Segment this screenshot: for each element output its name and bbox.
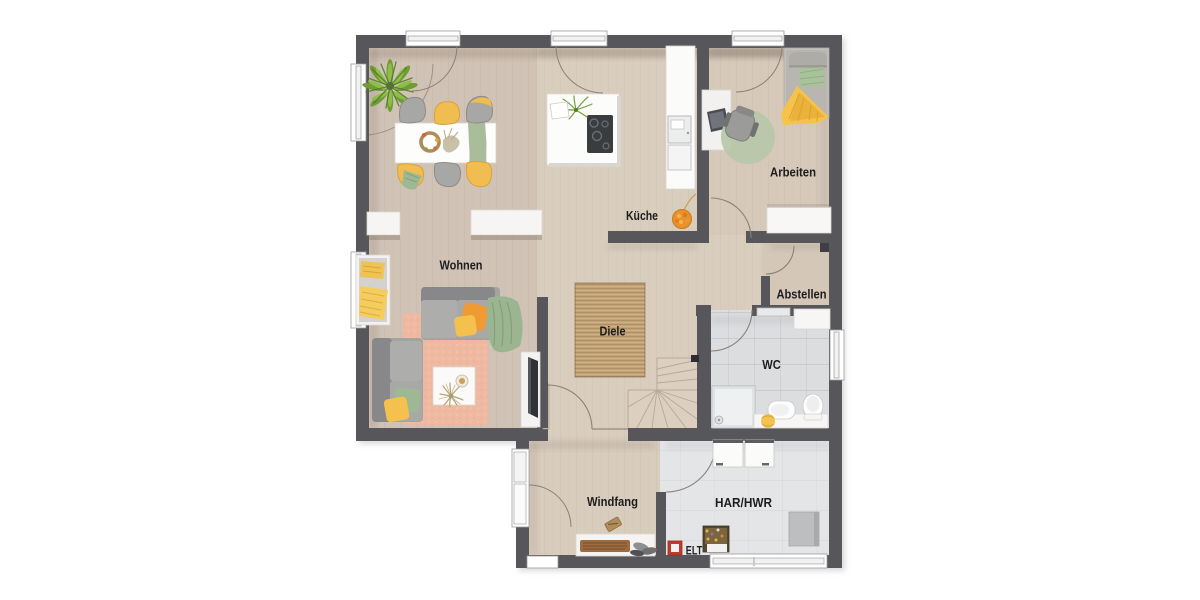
svg-text:Diele: Diele [600,324,626,339]
svg-text:HAR/HWR: HAR/HWR [715,495,773,510]
svg-text:WC: WC [762,357,781,372]
svg-text:Windfang: Windfang [587,494,638,509]
svg-text:Abstellen: Abstellen [777,287,827,302]
svg-text:ELT: ELT [686,544,703,558]
svg-text:Wohnen: Wohnen [440,258,483,273]
svg-text:Arbeiten: Arbeiten [770,165,816,180]
svg-text:Küche: Küche [626,208,658,223]
